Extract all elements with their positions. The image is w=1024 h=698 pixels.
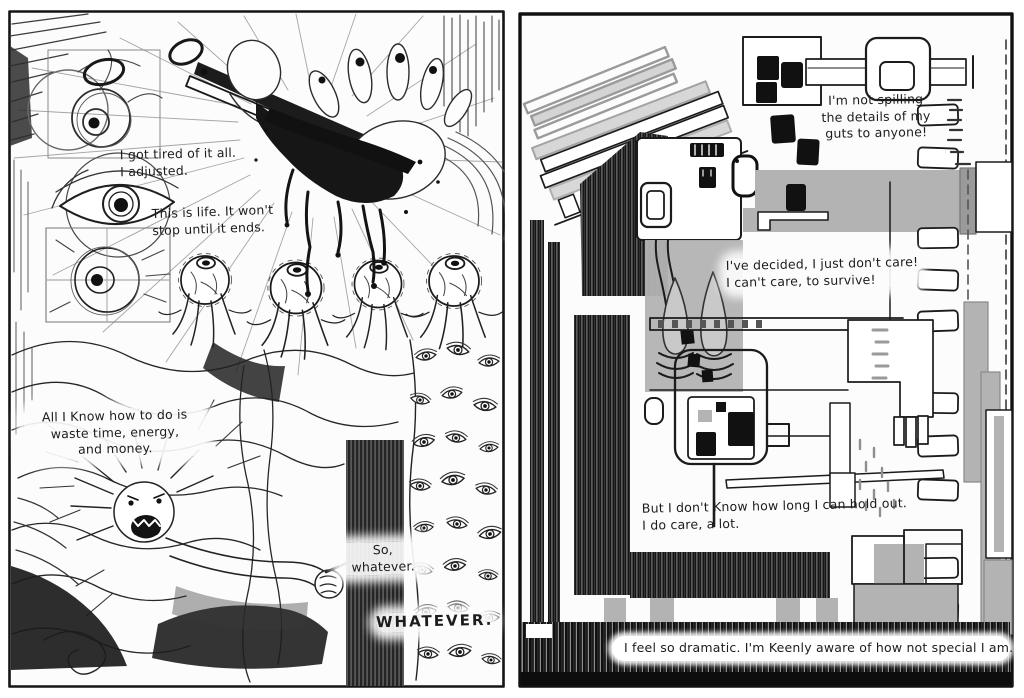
caption-spilling: I'm not spilling the details of my guts … — [794, 91, 959, 143]
caption-line: guts to anyone! — [794, 124, 958, 143]
caption-tired: I got tired of it all. I adjusted. — [120, 145, 237, 180]
comic-spread: I got tired of it all. I adjusted. This … — [0, 0, 1024, 698]
caption-life: This is life. It won't stop until it end… — [151, 202, 274, 239]
caption-line: I got tired of it all. — [120, 145, 237, 164]
machine-port — [641, 183, 671, 227]
black-column-b — [574, 315, 630, 595]
left-dark-bar-1 — [530, 220, 544, 634]
caption-line: whatever. — [338, 558, 428, 576]
left-page-panel: I got tired of it all. I adjusted. This … — [8, 10, 505, 688]
caption-whatever: WHATEVER. — [376, 611, 494, 633]
machine-box — [637, 138, 757, 240]
caption-line: So, — [338, 541, 428, 559]
gray-stripe — [994, 416, 1004, 552]
caption-decided: I've decided, I just don't care! I can't… — [726, 254, 919, 291]
black-blip-1 — [770, 114, 796, 144]
left-dark-bar-2 — [548, 242, 560, 634]
left-page-art — [8, 10, 505, 688]
band-notch — [526, 624, 552, 638]
bottom-edge — [521, 672, 1011, 685]
gray-panel — [743, 162, 1012, 234]
caption-hold-out: But I don't Know how long I can hold out… — [642, 495, 908, 534]
caption-line: I feel so dramatic. I'm Keenly aware of … — [624, 640, 998, 657]
caption-so-whatever: So, whatever. — [338, 541, 429, 576]
side-bump — [645, 398, 663, 424]
hatch-beam — [630, 552, 830, 598]
right-page-panel: I'm not spilling the details of my guts … — [518, 12, 1014, 688]
caption-line: I adjusted. — [120, 161, 237, 180]
caption-dramatic: I feel so dramatic. I'm Keenly aware of … — [612, 636, 1010, 661]
caption-waste: All I Know how to do is waste time, ener… — [24, 406, 207, 459]
comb-slats — [894, 416, 928, 447]
caption-line: WHATEVER. — [376, 611, 494, 633]
